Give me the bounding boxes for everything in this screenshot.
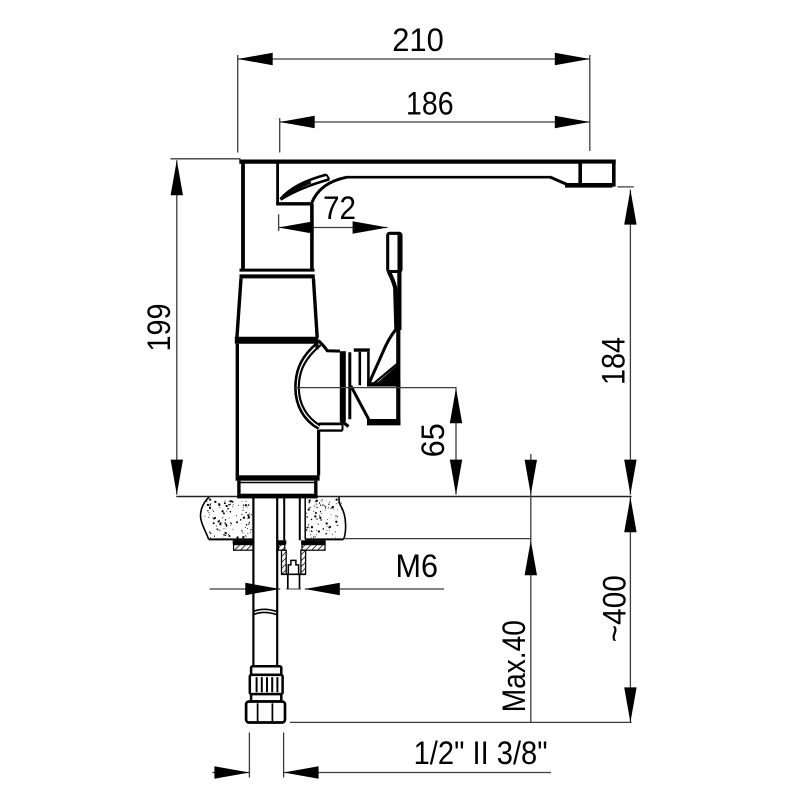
- svg-text:184: 184: [596, 337, 632, 385]
- svg-text:186: 186: [406, 85, 454, 121]
- svg-text:199: 199: [141, 304, 177, 352]
- svg-text:210: 210: [392, 22, 444, 58]
- svg-text:~400: ~400: [597, 575, 633, 642]
- svg-text:Max.40: Max.40: [496, 620, 532, 712]
- svg-text:M6: M6: [396, 548, 439, 584]
- svg-text:1/2" II 3/8": 1/2" II 3/8": [414, 735, 548, 771]
- svg-text:65: 65: [415, 423, 451, 457]
- svg-text:72: 72: [323, 190, 356, 226]
